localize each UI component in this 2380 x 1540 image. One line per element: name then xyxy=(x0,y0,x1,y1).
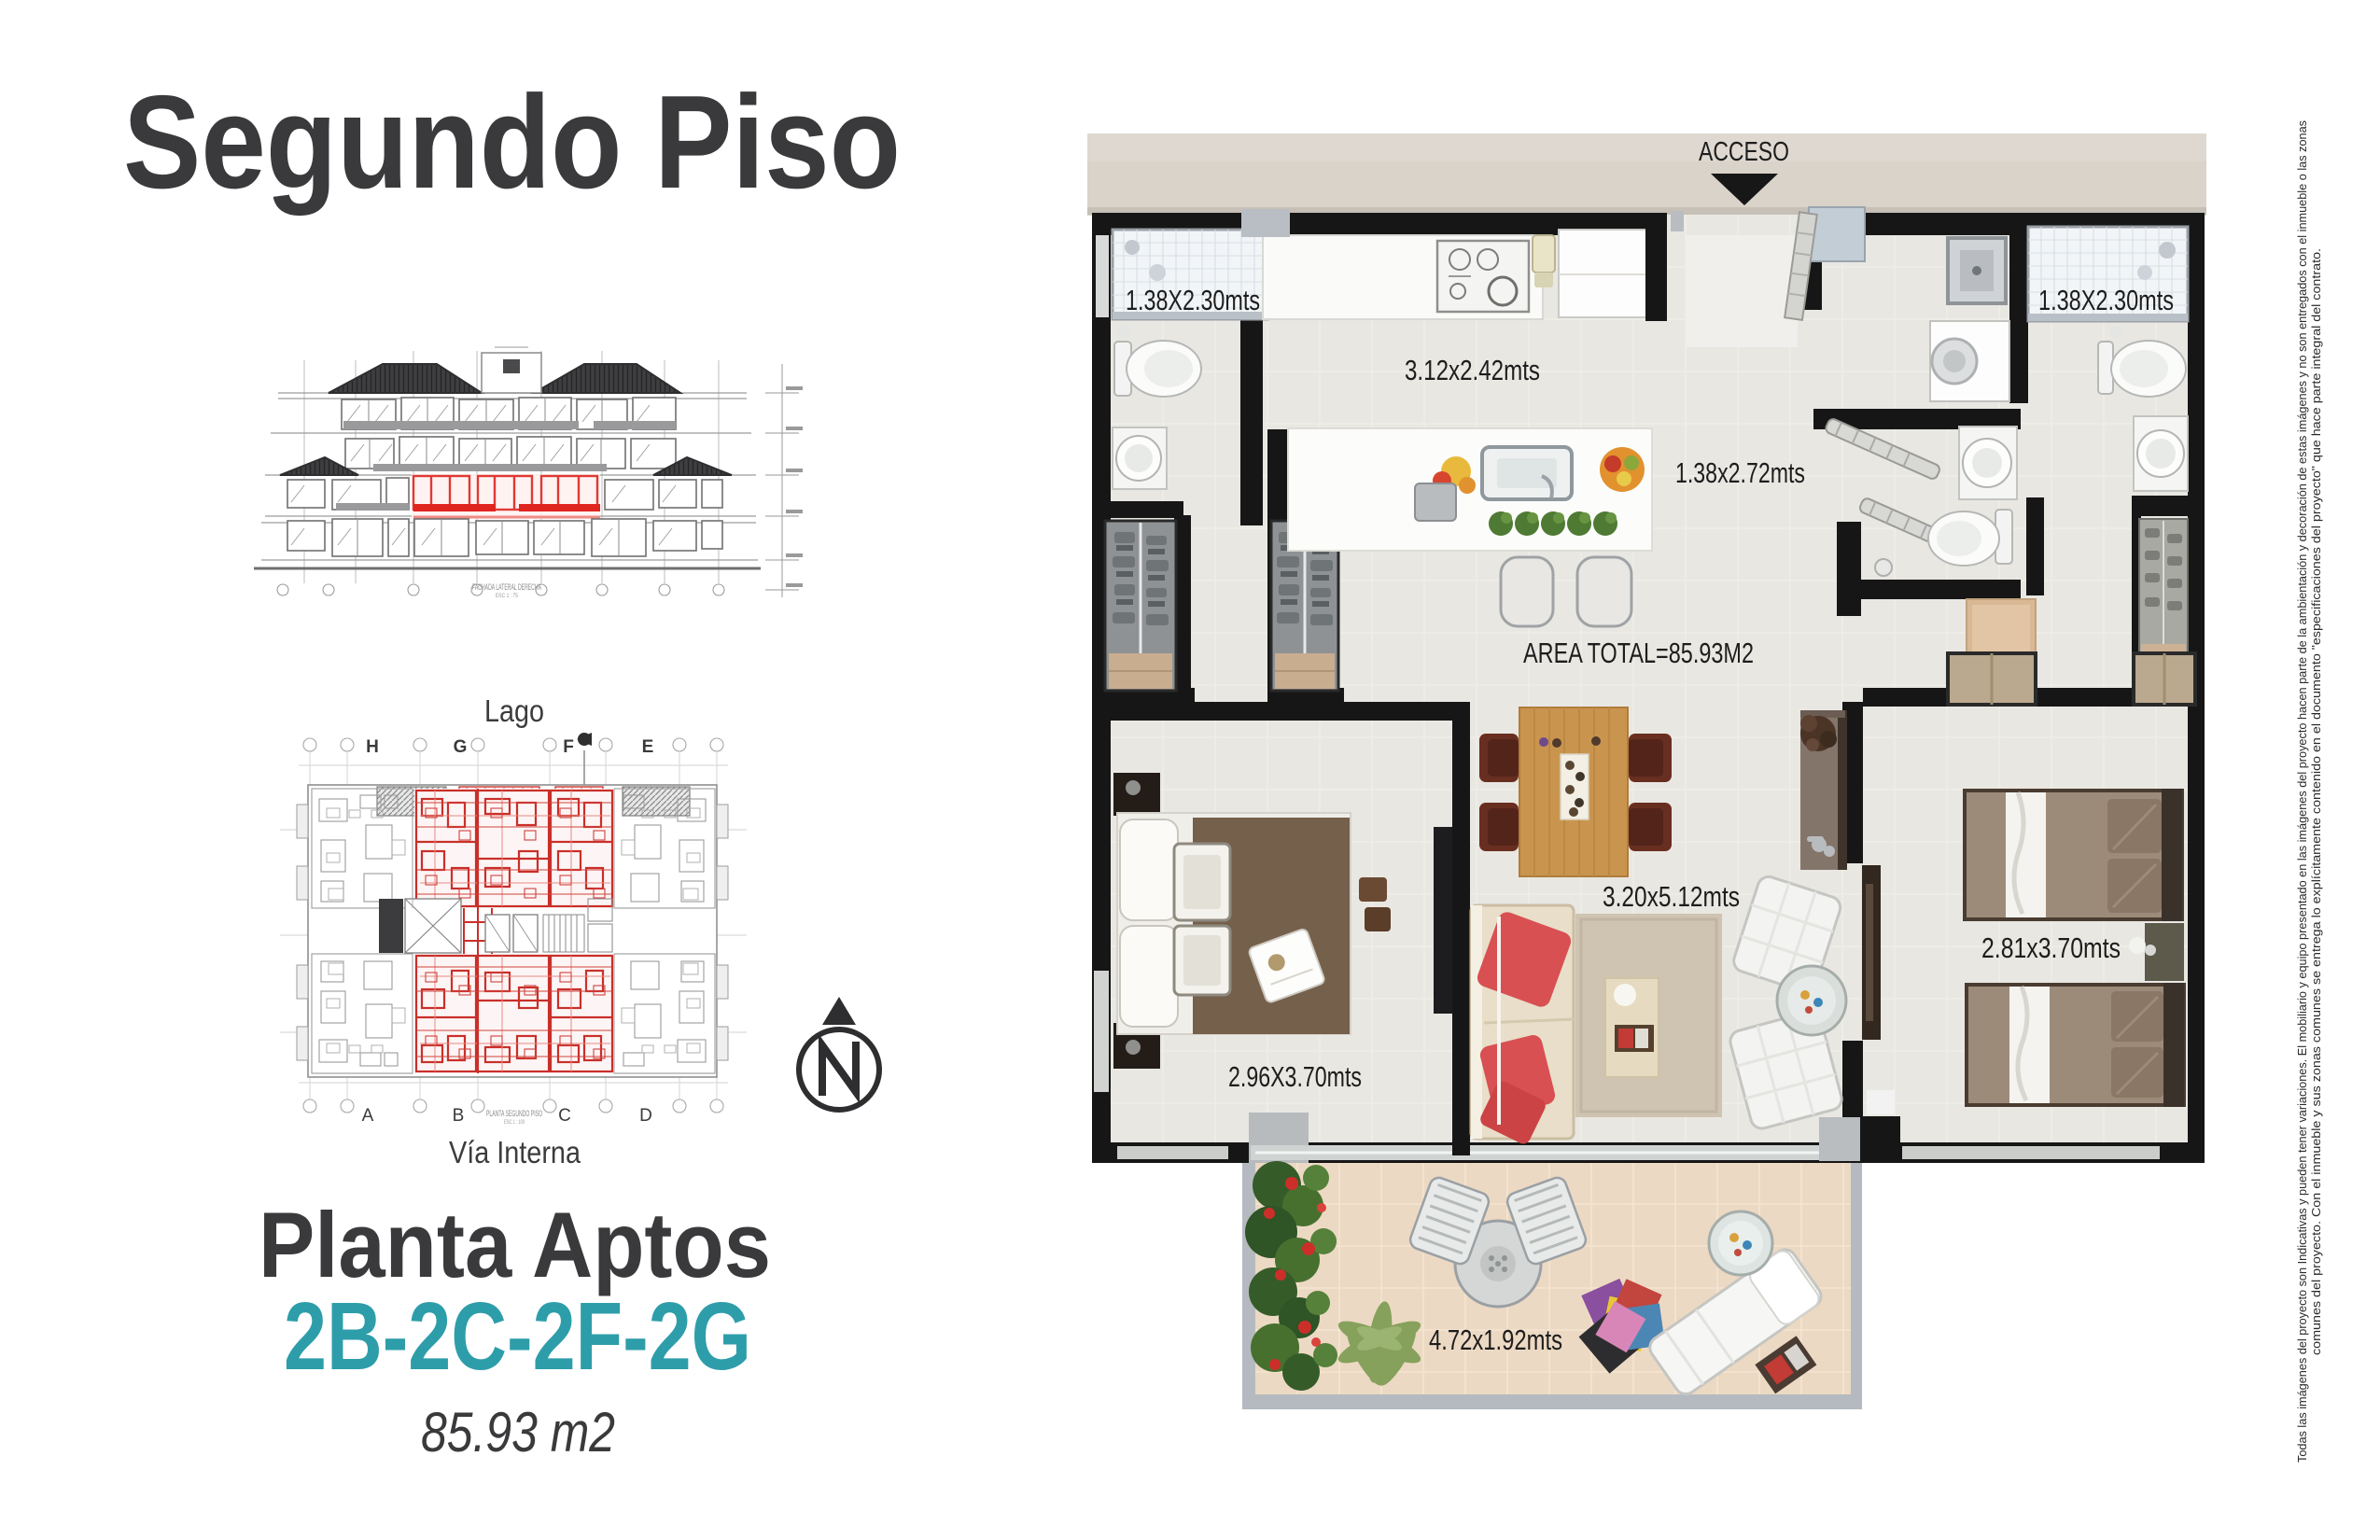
svg-text:ACCESO: ACCESO xyxy=(1699,137,1789,167)
svg-text:Vía Interna: Vía Interna xyxy=(449,1135,581,1169)
svg-text:2.96X3.70mts: 2.96X3.70mts xyxy=(1228,1060,1362,1093)
svg-text:Lago: Lago xyxy=(484,693,544,728)
svg-text:85.93 m2: 85.93 m2 xyxy=(421,1401,615,1463)
svg-text:1.38x2.72mts: 1.38x2.72mts xyxy=(1675,456,1805,489)
svg-text:comunes del proyecto. Con el i: comunes del proyecto. Con el inmueble y … xyxy=(2309,248,2323,1355)
svg-text:3.20x5.12mts: 3.20x5.12mts xyxy=(1603,880,1740,913)
svg-text:3.12x2.42mts: 3.12x2.42mts xyxy=(1405,354,1540,386)
svg-text:H: H xyxy=(366,737,379,757)
svg-text:D: D xyxy=(639,1106,652,1126)
svg-text:PLANTA SEGUNDO PISO: PLANTA SEGUNDO PISO xyxy=(486,1109,542,1118)
svg-text:F: F xyxy=(563,737,574,757)
svg-text:ESC 1 : 75: ESC 1 : 75 xyxy=(496,594,519,599)
svg-text:1.38X2.30mts: 1.38X2.30mts xyxy=(2038,284,2174,316)
svg-text:AREA TOTAL=85.93M2: AREA TOTAL=85.93M2 xyxy=(1523,637,1754,669)
svg-text:Planta Aptos: Planta Aptos xyxy=(259,1193,771,1296)
svg-text:E: E xyxy=(642,737,654,757)
svg-text:1.38X2.30mts: 1.38X2.30mts xyxy=(1126,284,1260,316)
svg-text:Segundo Piso: Segundo Piso xyxy=(123,68,901,217)
svg-text:Todas las imágenes del proyect: Todas las imágenes del proyecto son Indi… xyxy=(2295,120,2309,1463)
svg-text:2.81x3.70mts: 2.81x3.70mts xyxy=(1981,931,2121,964)
svg-text:4.72x1.92mts: 4.72x1.92mts xyxy=(1429,1323,1562,1356)
svg-text:B: B xyxy=(453,1106,465,1126)
svg-text:C: C xyxy=(558,1106,571,1126)
svg-text:G: G xyxy=(454,737,468,757)
svg-text:ESC 1 : 100: ESC 1 : 100 xyxy=(504,1120,525,1126)
svg-text:A: A xyxy=(362,1106,374,1126)
svg-text:2B-2C-2F-2G: 2B-2C-2F-2G xyxy=(284,1282,751,1390)
svg-text:FACHADA LATERAL DERECHA: FACHADA LATERAL DERECHA xyxy=(472,582,541,592)
